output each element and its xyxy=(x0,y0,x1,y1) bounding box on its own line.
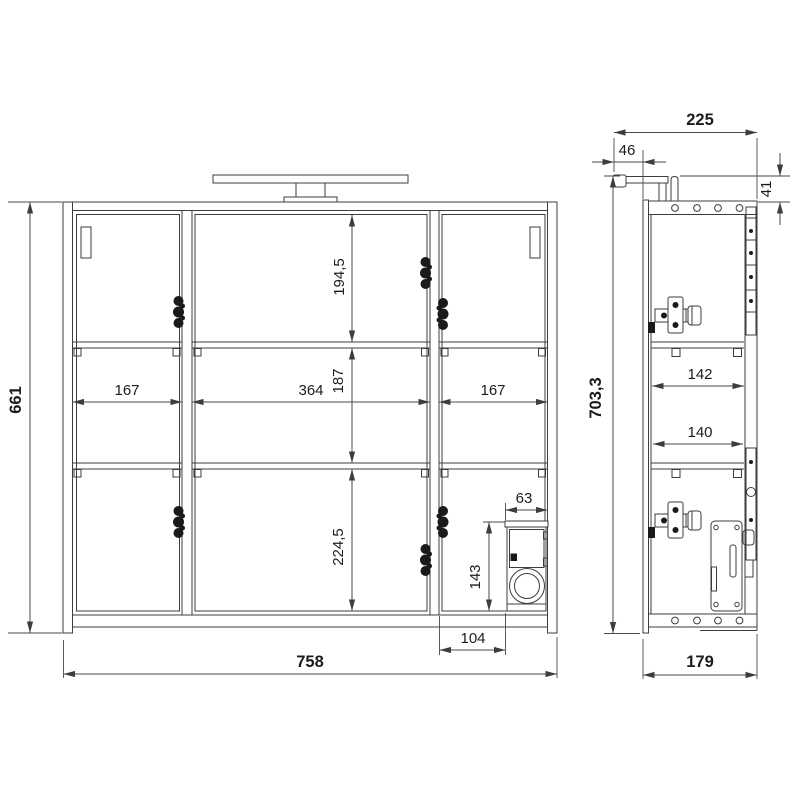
dim-socket-width: 63 xyxy=(516,490,533,507)
front-shelves xyxy=(73,342,548,477)
dim-inner-depth-lower: 140 xyxy=(687,424,712,441)
shelf-clips xyxy=(74,349,546,478)
dim-bay-middle: 187 xyxy=(330,368,347,393)
front-dimensions: 661 758 167 364 167 194,5 187 224,5 63 xyxy=(7,202,557,678)
dim-side-depth-total: 225 xyxy=(686,111,714,129)
side-shelves xyxy=(651,342,744,478)
door-handle-slot-left xyxy=(81,227,91,258)
dim-compartment-left: 167 xyxy=(114,382,139,399)
front-doors xyxy=(77,215,546,612)
technical-drawing-page: 661 758 167 364 167 194,5 187 224,5 63 xyxy=(0,0,800,800)
dim-socket-offset: 104 xyxy=(460,630,485,647)
dim-lamp-height: 41 xyxy=(758,181,775,198)
dim-compartment-right: 167 xyxy=(480,382,505,399)
hinge-icons-front xyxy=(173,257,449,576)
side-dimensions: 225 46 41 703,3 142 140 179 xyxy=(587,111,790,679)
dim-front-overall-width: 758 xyxy=(296,653,324,671)
side-view: 225 46 41 703,3 142 140 179 xyxy=(587,111,790,679)
side-lamp-icon xyxy=(613,175,678,202)
dim-lamp-overhang: 46 xyxy=(619,142,636,159)
dim-front-overall-height: 661 xyxy=(7,386,25,414)
front-lamp-icon xyxy=(213,175,408,203)
dim-inner-depth-upper: 142 xyxy=(687,366,712,383)
dim-side-body-depth: 179 xyxy=(686,653,714,671)
dim-bay-bottom: 224,5 xyxy=(330,528,347,566)
hinge-icon-side-lower xyxy=(648,502,701,538)
socket-box-side xyxy=(711,521,742,611)
dim-side-height-total: 703,3 xyxy=(587,377,605,418)
socket-box-front xyxy=(505,521,548,611)
hinge-icon-side-upper xyxy=(648,297,701,333)
door-handle-slot-right xyxy=(530,227,540,258)
dim-bay-top: 194,5 xyxy=(331,258,348,296)
dim-socket-height: 143 xyxy=(467,564,484,589)
dim-compartment-middle: 364 xyxy=(298,382,323,399)
front-view: 661 758 167 364 167 194,5 187 224,5 63 xyxy=(7,175,557,678)
cabinet-dimension-drawing: 661 758 167 364 167 194,5 187 224,5 63 xyxy=(0,0,800,800)
